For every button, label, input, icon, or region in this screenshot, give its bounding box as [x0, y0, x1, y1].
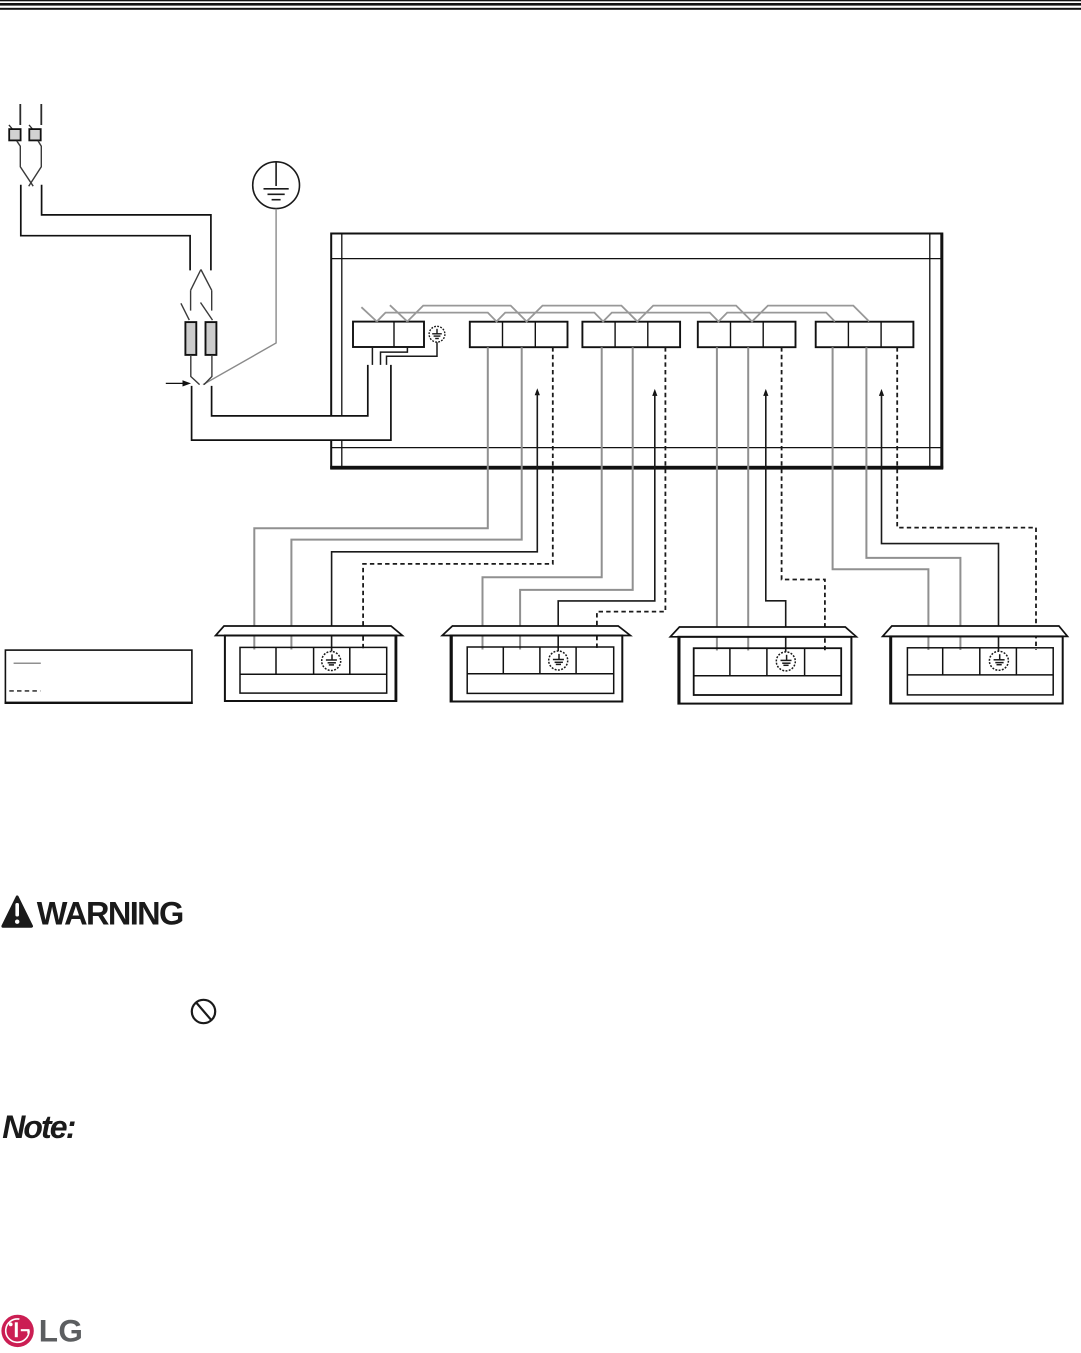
svg-text:LG: LG [39, 1312, 83, 1348]
svg-text:Note:: Note: [2, 1109, 76, 1145]
svg-text:WARNING: WARNING [37, 896, 183, 932]
